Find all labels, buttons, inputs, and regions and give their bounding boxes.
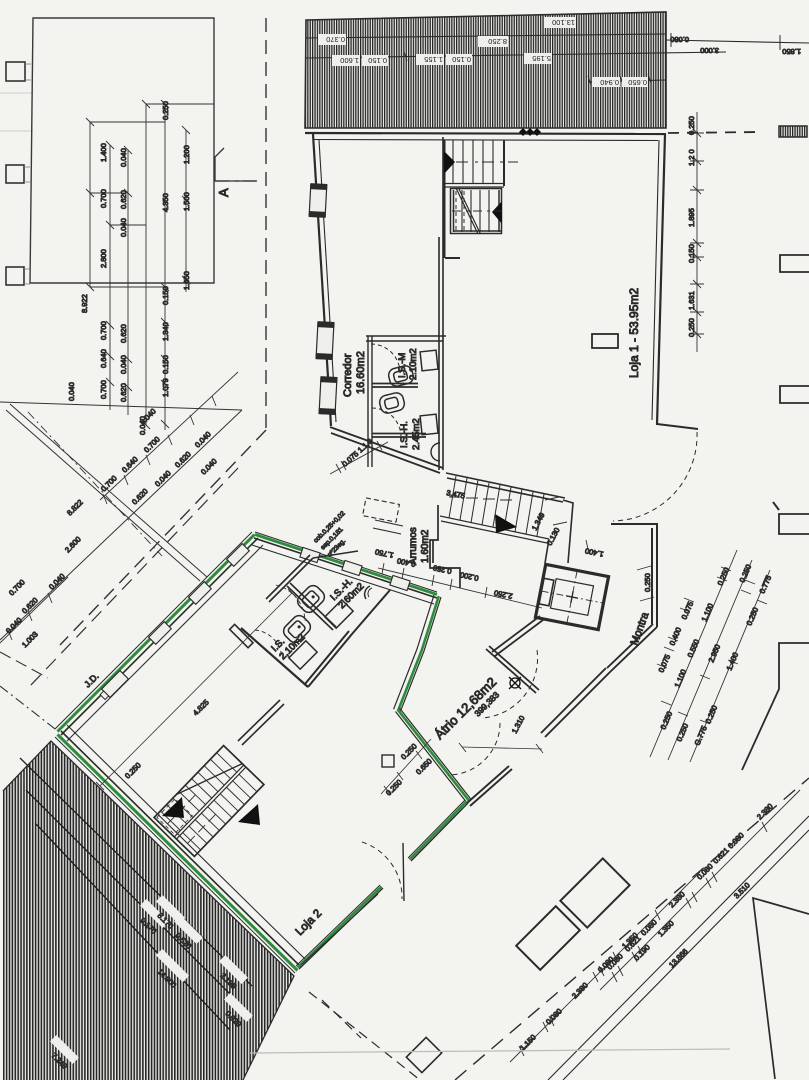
svg-text:4.350: 4.350 [161,193,170,212]
svg-text:1.850: 1.850 [782,47,801,56]
svg-text:0.250: 0.250 [161,101,170,120]
svg-text:0.250: 0.250 [687,318,696,337]
svg-text:3.000: 3.000 [700,46,719,55]
svg-text:1.400: 1.400 [99,143,108,162]
svg-text:5.195: 5.195 [532,54,551,63]
svg-text:0.150: 0.150 [161,355,170,374]
svg-text:0.640: 0.640 [99,349,108,368]
svg-text:I.S.-H.: I.S.-H. [399,421,410,448]
svg-text:Loja 1 - 53.95m2: Loja 1 - 53.95m2 [627,288,641,378]
svg-text:1.079: 1.079 [161,378,170,397]
svg-text:2.800: 2.800 [99,249,108,268]
svg-text:0.040: 0.040 [67,382,76,401]
svg-text:0.150: 0.150 [368,56,387,65]
svg-text:1.155: 1.155 [424,55,443,64]
svg-text:0.620: 0.620 [119,383,128,402]
svg-text:1.60m2: 1.60m2 [420,529,431,563]
svg-text:16.60m2: 16.60m2 [355,351,367,394]
svg-text:Corredor: Corredor [342,353,354,397]
svg-text:13.100: 13.100 [552,18,575,27]
svg-text:0.370: 0.370 [326,35,345,44]
svg-text:1.340: 1.340 [161,322,170,341]
svg-text:I.S.-M: I.S.-M [397,353,408,378]
svg-text:0.700: 0.700 [99,380,108,399]
svg-text:0.040: 0.040 [119,355,128,374]
svg-text:0.080: 0.080 [670,35,689,44]
svg-text:0.620: 0.620 [119,190,128,209]
svg-text:0.150: 0.150 [687,244,696,263]
svg-text:2.45m2: 2.45m2 [411,418,422,450]
svg-text:0.250: 0.250 [687,116,696,135]
svg-text:0.620: 0.620 [119,324,128,343]
svg-text:0.700: 0.700 [99,189,108,208]
svg-text:8.922: 8.922 [80,294,89,313]
svg-text:1.200: 1.200 [182,145,191,164]
svg-text:1.2 0: 1.2 0 [687,149,696,166]
svg-text:A: A [216,188,231,197]
svg-text:1.631: 1.631 [687,291,696,310]
svg-text:1.500: 1.500 [182,192,191,211]
svg-text:0.040: 0.040 [119,218,128,237]
svg-text:0.150: 0.150 [452,55,471,64]
svg-text:1.650: 1.650 [182,271,191,290]
svg-text:0.700: 0.700 [99,321,108,340]
svg-text:0.940: 0.940 [600,78,619,87]
svg-text:0.040: 0.040 [119,148,128,167]
svg-text:0.250: 0.250 [643,573,652,592]
svg-text:2.10m2: 2.10m2 [408,348,419,380]
svg-text:1.600: 1.600 [340,56,359,65]
svg-text:1.895: 1.895 [687,208,696,227]
svg-text:8.250: 8.250 [488,37,507,46]
svg-text:0.650: 0.650 [628,78,647,87]
svg-text:0.150: 0.150 [161,286,170,305]
